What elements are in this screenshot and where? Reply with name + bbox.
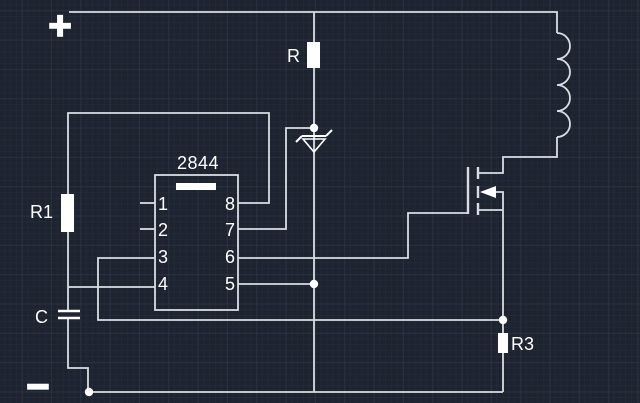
schematic-canvas: + − R R1 C R3 2844 1 2 3 4 8 7 6 5: [0, 0, 640, 403]
coil-to-drain: [478, 137, 557, 173]
cap-to-gnd: [68, 318, 88, 392]
ic-pin-label-7: 7: [225, 220, 235, 240]
minus-terminal-label: −: [26, 365, 49, 403]
ic-pin-label-6: 6: [225, 247, 235, 267]
ic-pin-label-1: 1: [158, 194, 168, 214]
schematic-labels: + − R R1 C R3 2844 1 2 3 4 8 7 6 5: [26, 4, 534, 403]
resistor-body-R3: [498, 333, 508, 353]
inductor-coil: [557, 33, 570, 137]
zener-bar-wing-left: [296, 136, 302, 142]
plus-terminal-label: +: [48, 4, 71, 48]
pin6-to-gate: [238, 213, 468, 258]
junction-dot: [499, 316, 507, 324]
ic-pin-label-2: 2: [158, 220, 168, 240]
mosfet-body-link: [496, 192, 503, 210]
ic-part-number: 2844: [177, 153, 219, 173]
schematic-graphics: [58, 12, 570, 396]
junction-dot: [310, 124, 318, 132]
junction-dot: [85, 388, 93, 396]
resistor-label-r3: R3: [511, 334, 534, 354]
ic-pin-label-8: 8: [225, 194, 235, 214]
resistor-body-R: [307, 42, 320, 68]
zener-to-pin7: [238, 128, 314, 229]
ic-pin-label-5: 5: [225, 274, 235, 294]
junction-dot: [310, 280, 318, 288]
circuit-schematic: + − R R1 C R3 2844 1 2 3 4 8 7 6 5: [0, 0, 640, 403]
ic-pin-label-3: 3: [158, 247, 168, 267]
resistor-label-r: R: [287, 46, 300, 66]
resistor-body-R1: [61, 194, 74, 232]
ic-notch-bar: [176, 183, 216, 190]
ic-pin-label-4: 4: [158, 274, 168, 294]
zener-bar-wing-right: [326, 130, 332, 136]
mosfet-body-arrow: [480, 186, 496, 198]
capacitor-label-c: C: [35, 307, 48, 327]
vplus-rail: [69, 12, 557, 33]
resistor-label-r1: R1: [30, 202, 53, 222]
